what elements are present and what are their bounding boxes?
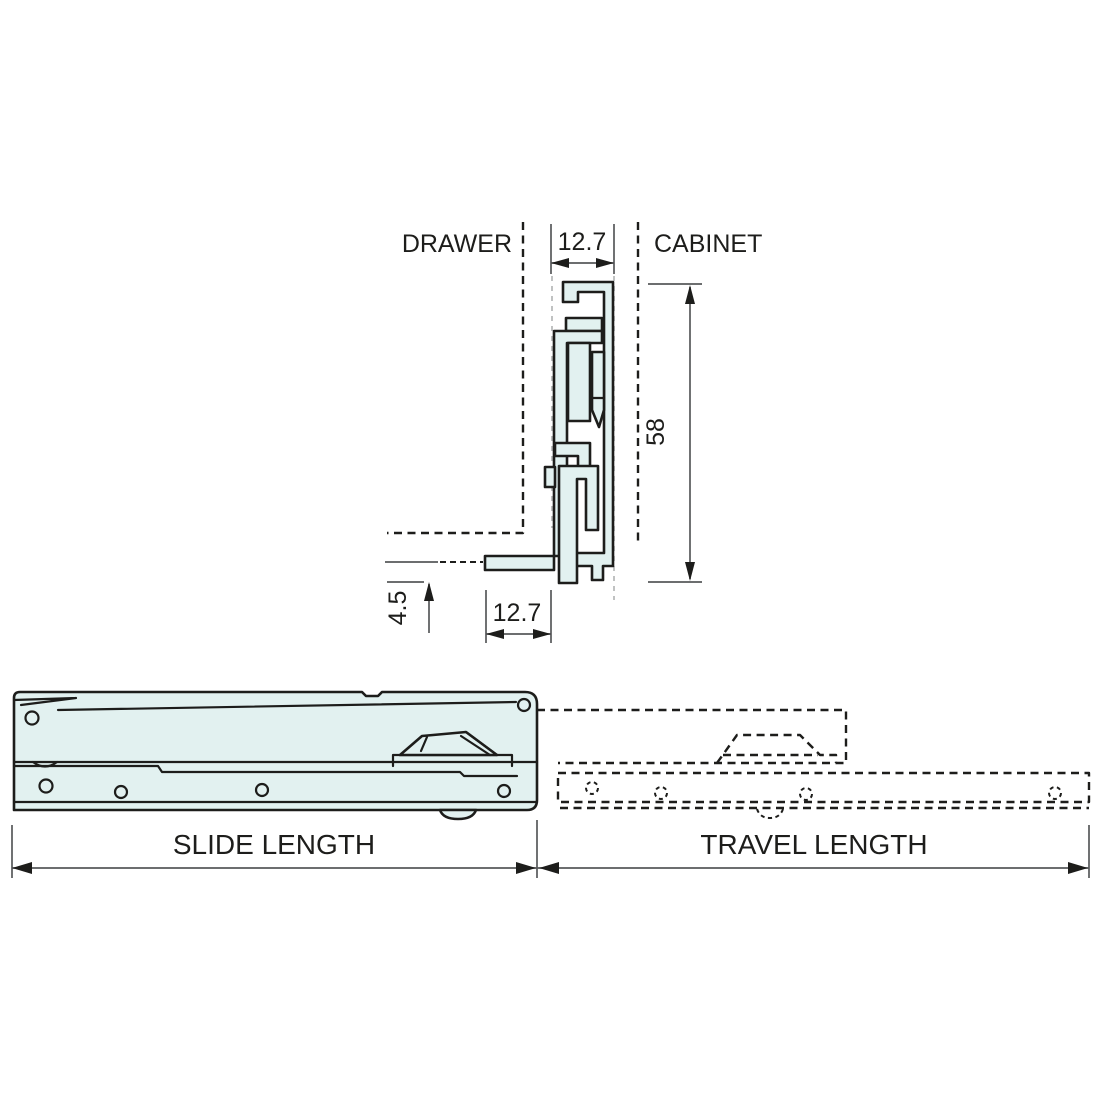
inner-member-pointed-bar [592,352,604,427]
mounting-hole [256,784,268,796]
mounting-hole [26,712,39,725]
arrowhead-left-icon [12,862,32,874]
mounting-hole-dashed [1049,787,1061,799]
arrowhead-right-icon [516,862,536,874]
mounting-hole [518,699,530,711]
mounting-hole [40,780,53,793]
dim-value-flange-width: 12.7 [493,599,542,627]
arrowhead-right-icon [1068,862,1088,874]
arrowhead-down-icon [685,562,695,581]
arrowhead-left-icon [551,258,569,268]
cross-section-view: DRAWER CABINET 12.7 58 4.5 12 [384,222,762,643]
slide-cross-section-profile [485,282,613,583]
mounting-hole [498,785,510,797]
arrowhead-right-icon [533,629,551,639]
dimension-slide-width-top: 12.7 [551,224,614,274]
dim-value-height: 58 [642,418,670,446]
roller-bump [440,810,476,819]
mounting-hole-dashed [800,788,812,800]
dim-value-top-width: 12.7 [558,228,607,256]
lower-left-tab [545,467,555,487]
drawer-label: DRAWER [402,230,512,258]
dimension-travel-length: TRAVEL LENGTH [537,825,1089,878]
arrowhead-right-icon [596,258,614,268]
dim-value-flange-drop: 4.5 [384,591,412,626]
arrowhead-left-icon [486,629,504,639]
mounting-hole-dashed [655,787,667,799]
diagram-stage: DRAWER CABINET 12.7 58 4.5 12 [0,0,1100,1100]
dimension-flange-drop: 4.5 [384,562,483,633]
arrowhead-up-icon [685,285,695,304]
arrowhead-up-icon [424,582,434,601]
arrowhead-left-icon [539,862,559,874]
drawer-slide-diagram: DRAWER CABINET 12.7 58 4.5 12 [0,0,1100,1100]
intermediate-member-block [568,343,590,421]
roller-extended-dashed [757,809,783,818]
travel-length-label: TRAVEL LENGTH [700,829,927,860]
drawer-edge-dashed-outline [387,222,523,533]
intermediate-member-extended-dashed [537,710,846,763]
mounting-hole [115,786,127,798]
drawer-member-upper-step [566,318,602,331]
dimension-slide-height: 58 [642,284,702,582]
side-view: SLIDE LENGTH TRAVEL LENGTH [12,692,1089,878]
dimension-slide-length: SLIDE LENGTH [12,820,537,878]
mounting-hole-dashed [586,782,598,794]
slide-extended-dashed [537,710,1089,818]
drawer-member-extended-dashed [558,773,1089,802]
dimension-flange-width: 12.7 [486,590,551,643]
slide-length-label: SLIDE LENGTH [173,829,375,860]
slide-retracted-solid [14,692,537,819]
latch-lever-extended-dashed [717,735,836,763]
cabinet-label: CABINET [654,230,762,258]
